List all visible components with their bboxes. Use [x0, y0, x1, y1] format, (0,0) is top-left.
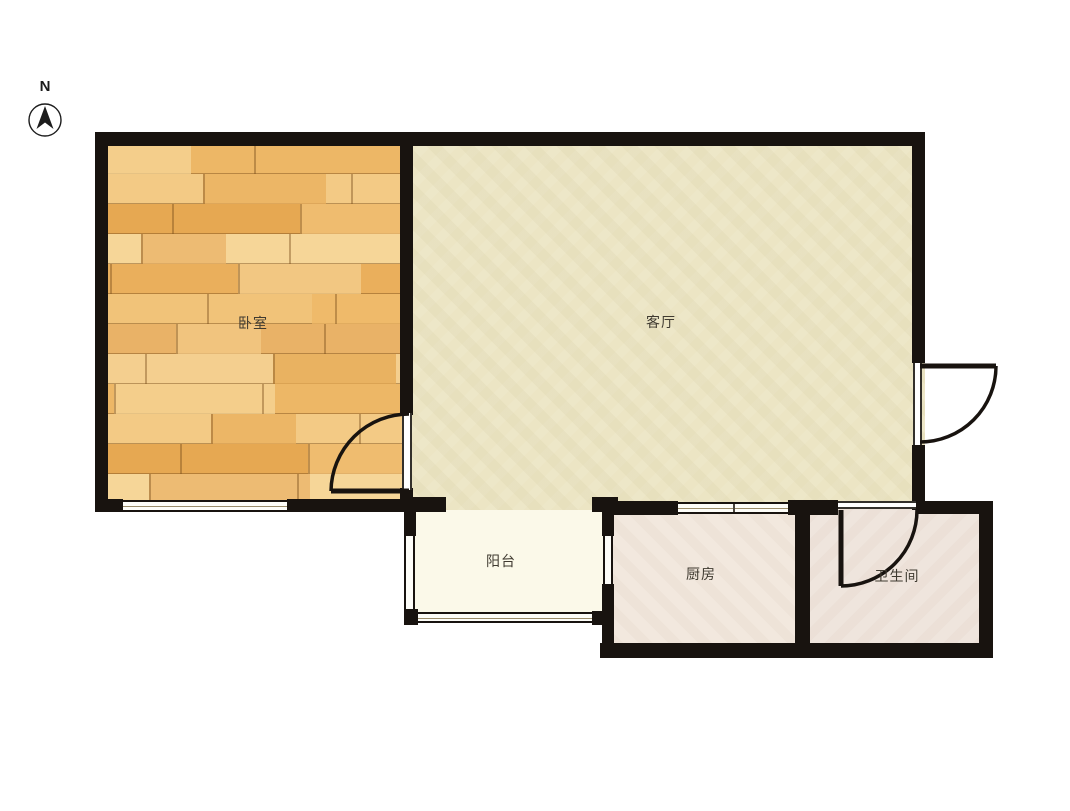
- wood-plank-seam: [110, 264, 112, 294]
- wood-plank-segment: [312, 294, 402, 324]
- wood-plank-row: [106, 354, 402, 384]
- wall-bedroom-living-upper: [400, 132, 413, 415]
- wood-plank-seam: [359, 414, 361, 444]
- wood-plank-segment: [211, 414, 296, 444]
- bedroom-door-frame: [402, 413, 412, 490]
- compass: N: [20, 82, 70, 140]
- wall-outer-right-upper: [912, 132, 925, 363]
- wood-plank-seam: [351, 174, 353, 204]
- entry-door-swing-arc: [920, 366, 996, 442]
- wall-outer-left: [95, 132, 108, 512]
- wall-kitchen-bath-divider: [795, 512, 810, 658]
- wood-plank-seam: [300, 204, 302, 234]
- wood-plank-row: [106, 204, 402, 234]
- kitchen-label: 厨房: [686, 564, 716, 584]
- living-room-label: 客厅: [646, 312, 676, 332]
- wall-balcony-kitchen-upper: [602, 512, 614, 536]
- wood-plank-seam: [114, 384, 116, 414]
- bedroom-label: 卧室: [238, 313, 268, 333]
- wall-outer-top: [95, 132, 925, 146]
- wall-kitchen-top-left: [614, 501, 678, 515]
- wood-plank-seam: [203, 174, 205, 204]
- entry-door-frame: [913, 363, 922, 445]
- bathroom-label: 卫生间: [875, 566, 920, 586]
- wood-plank-segment: [141, 234, 226, 264]
- wall-living-bottom-left-stub: [413, 497, 446, 512]
- wood-plank-row: [106, 144, 402, 174]
- wood-plank-segment: [273, 354, 396, 384]
- wall-bedroom-bottom-left: [95, 499, 123, 512]
- wood-plank-seam: [145, 354, 147, 384]
- bathroom-door-frame: [838, 501, 916, 509]
- wood-plank-row: [106, 414, 402, 444]
- wood-plank-row: [106, 444, 402, 474]
- balcony-label: 阳台: [486, 551, 516, 571]
- wood-plank-row: [106, 264, 402, 294]
- wood-plank-seam: [207, 294, 209, 324]
- wall-bottom-kitchen-bath: [600, 643, 993, 658]
- wood-plank-segment: [300, 204, 402, 234]
- wood-plank-row: [106, 474, 402, 501]
- compass-north-label: N: [40, 78, 51, 95]
- wood-plank-seam: [335, 294, 337, 324]
- wood-plank-seam: [211, 414, 213, 444]
- balcony-south-window: [410, 612, 600, 623]
- bedroom-south-window: [123, 500, 287, 512]
- wood-plank-row: [106, 234, 402, 264]
- wall-bedroom-bottom-right: [287, 499, 415, 512]
- wood-plank-seam: [297, 474, 299, 501]
- wood-plank-segment: [238, 264, 361, 294]
- wood-plank-seam: [149, 474, 151, 501]
- wood-plank-seam: [180, 444, 182, 474]
- wood-plank-seam: [324, 324, 326, 354]
- wood-plank-seam: [176, 324, 178, 354]
- wood-plank-row: [106, 384, 402, 414]
- wall-bathroom-right: [979, 501, 993, 658]
- balcony-kitchen-window: [603, 536, 613, 584]
- wall-balcony-left-post: [404, 512, 416, 536]
- wood-plank-segment: [106, 144, 191, 174]
- wood-plank-segment: [308, 444, 402, 474]
- wood-plank-seam: [141, 234, 143, 264]
- wood-plank-row: [106, 174, 402, 204]
- wood-plank-seam: [308, 444, 310, 474]
- wood-plank-seam: [172, 204, 174, 234]
- wood-plank-seam: [289, 234, 291, 264]
- wood-plank-segment: [149, 474, 310, 501]
- floor-plan: 卧室 客厅 阳台 厨房 卫生间 N: [0, 0, 1070, 811]
- wall-bedroom-living-lower: [400, 488, 413, 512]
- wood-plank-seam: [262, 384, 264, 414]
- wood-plank-seam: [273, 354, 275, 384]
- wood-plank-seam: [254, 144, 256, 174]
- balcony-west-window: [404, 536, 415, 609]
- wood-plank-segment: [203, 174, 326, 204]
- kitchen-north-window: [678, 502, 790, 514]
- wall-balcony-corner-sw: [404, 609, 418, 625]
- wood-plank-seam: [238, 264, 240, 294]
- wall-bathroom-top-right: [916, 501, 984, 514]
- wood-plank-segment: [114, 384, 275, 414]
